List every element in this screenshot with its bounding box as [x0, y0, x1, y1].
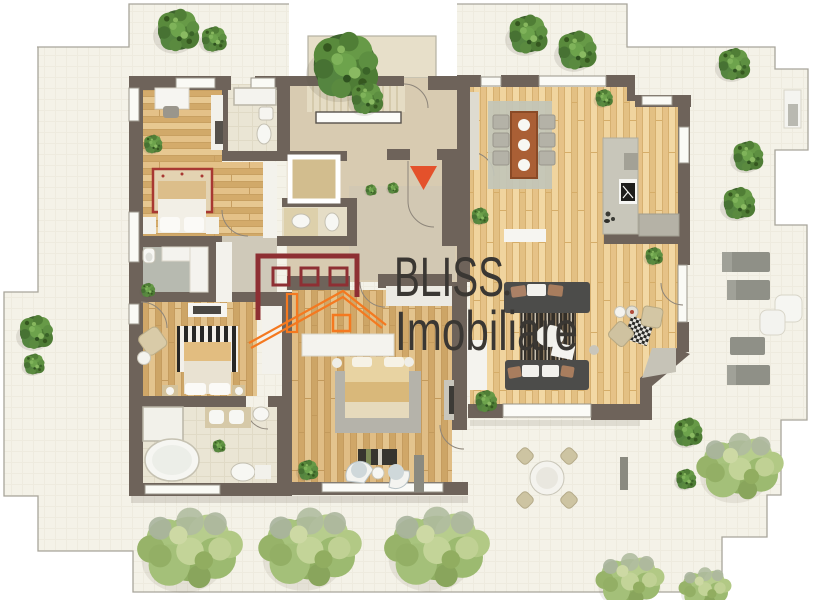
svg-text:Imobiliare: Imobiliare [395, 299, 578, 362]
